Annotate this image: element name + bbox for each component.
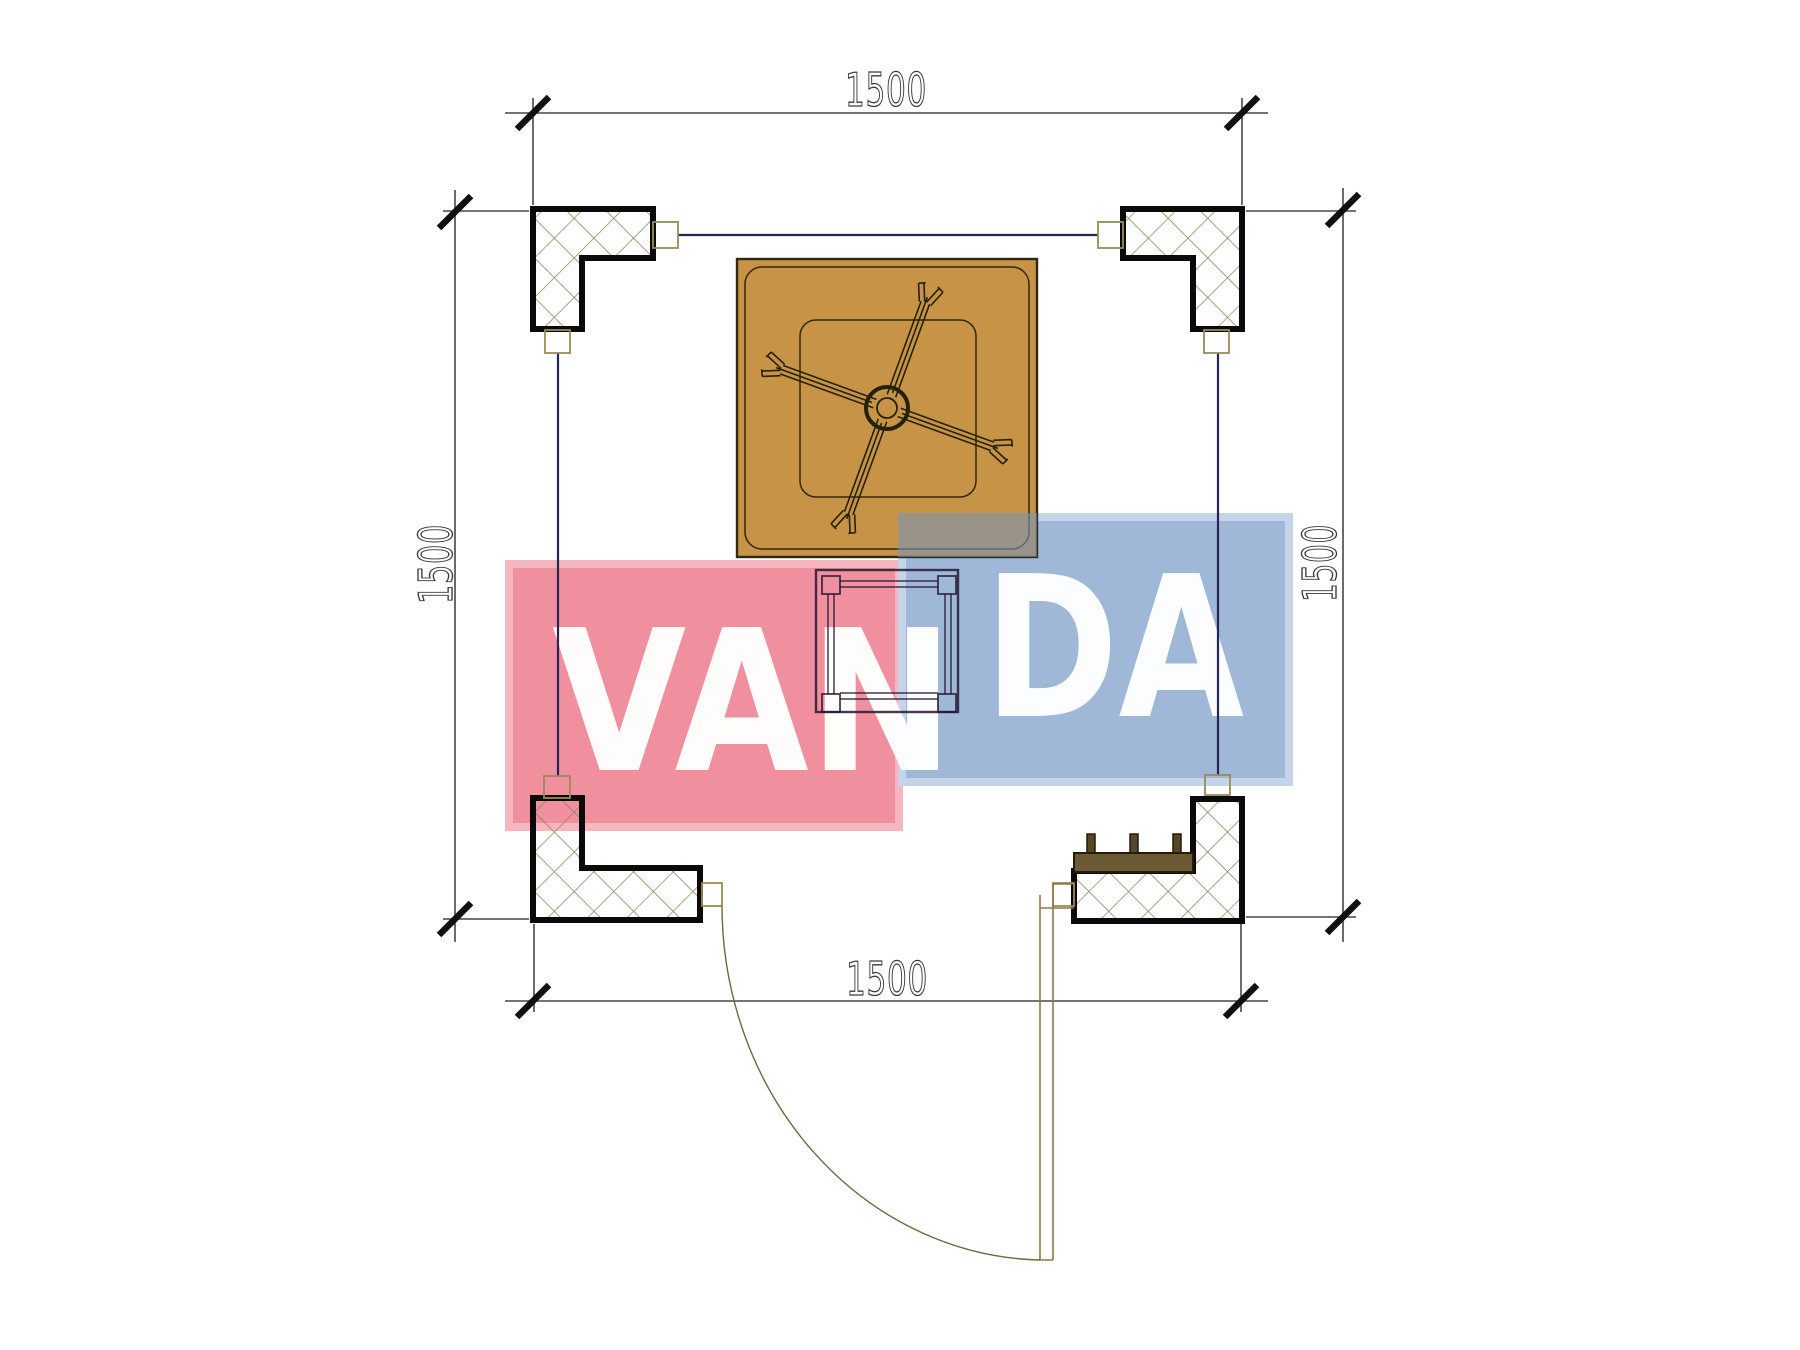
fan-hub: [877, 398, 897, 418]
canopy: [737, 259, 1037, 557]
corner-column-top-left: [533, 209, 653, 329]
bench-back-post: [1130, 834, 1138, 854]
dimension-text-top: 1500: [845, 63, 927, 117]
watermark-text-van: VAN: [552, 589, 954, 817]
corner-column-top-right: [1123, 209, 1242, 329]
dimension-text-bottom: 1500: [846, 952, 928, 1006]
watermark-text-da: DA: [984, 535, 1244, 763]
dimension-text-left: 1500: [409, 524, 463, 604]
door-leaf: [1040, 884, 1053, 1260]
watermark: VAN DA: [505, 513, 1293, 831]
bench-back-post: [1087, 834, 1095, 854]
floor-plan-canvas: VAN DA 150: [0, 0, 1800, 1350]
dimension-text-right: 1500: [1293, 524, 1347, 602]
bench-seat: [1074, 853, 1193, 872]
door-hinge-jamb: [1040, 884, 1074, 908]
floor-plan-drawing: VAN DA 150: [0, 0, 1800, 1350]
swing-door: [722, 884, 1074, 1260]
canopy-watermark-tint: [898, 513, 1037, 557]
bench: [1074, 834, 1193, 872]
bench-back-post: [1173, 834, 1181, 854]
